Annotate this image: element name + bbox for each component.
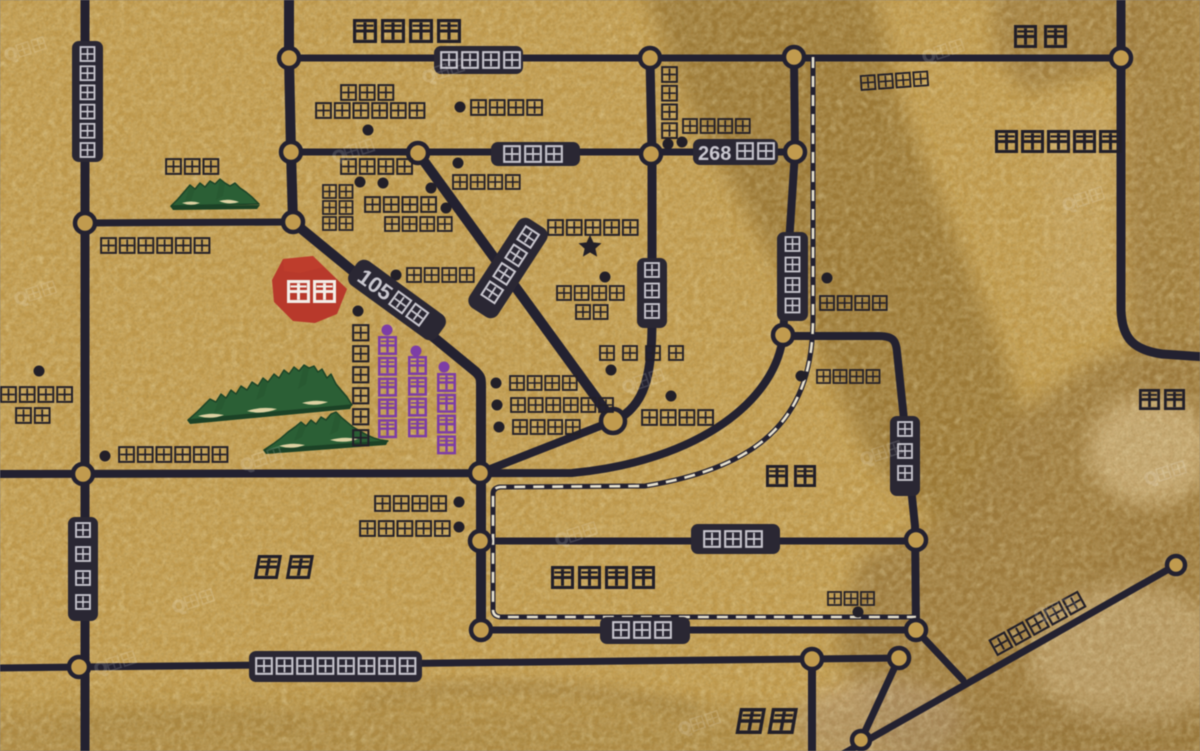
svg-text:268: 268 <box>698 143 731 165</box>
